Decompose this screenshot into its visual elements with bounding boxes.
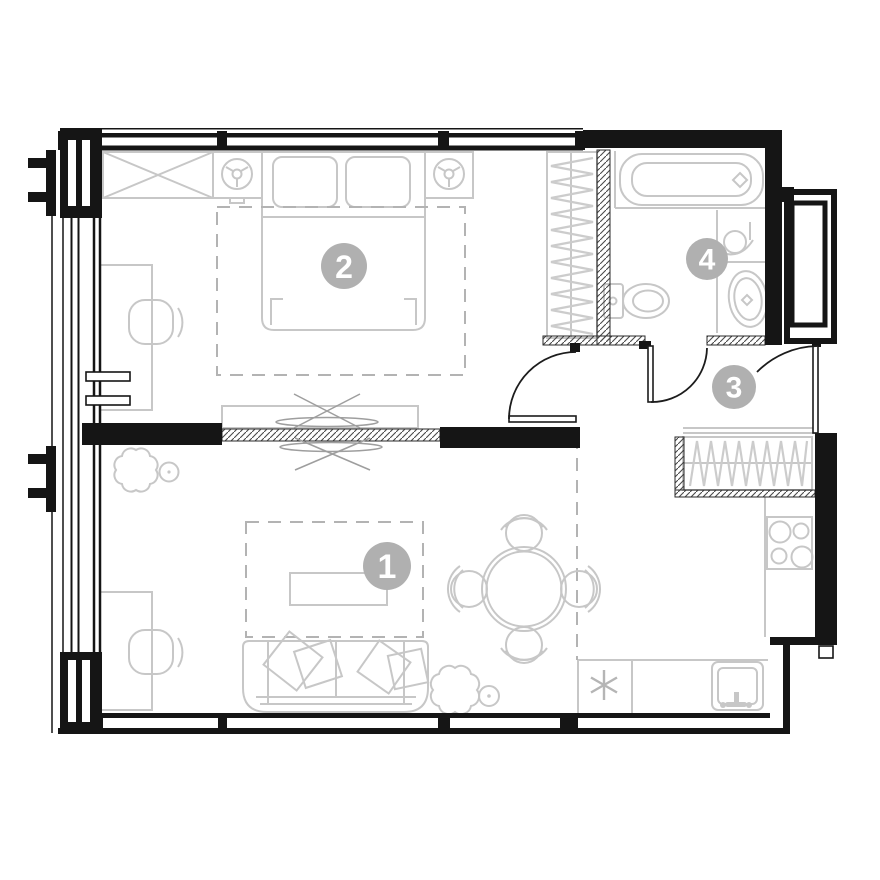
- table-lamp-icon: [222, 159, 252, 189]
- room-badges: 1 2 3 4: [321, 238, 756, 590]
- table-lamp-icon: [434, 159, 464, 189]
- bathroom-wall: [707, 336, 765, 345]
- wall-corner-block: [60, 652, 102, 734]
- top-wall: [583, 130, 782, 148]
- room-badge-living: 1: [363, 542, 411, 590]
- kitchen-sink: [712, 662, 763, 710]
- room-number: 1: [378, 548, 397, 586]
- rug-bedroom: [217, 207, 465, 375]
- right-wall: [815, 433, 837, 638]
- desk-living: [100, 592, 152, 710]
- bathroom-right-wall: [765, 145, 782, 345]
- entrance-door: [757, 346, 818, 433]
- bedroom-door: [509, 352, 576, 422]
- dining-table: [482, 547, 566, 631]
- desk-chair: [129, 300, 182, 344]
- floor-plan-drawing: 1 2 3 4: [0, 0, 880, 880]
- drain-icon: [733, 173, 747, 187]
- facade-bracket: [28, 150, 56, 216]
- floor-plan-canvas: 1 2 3 4: [0, 0, 880, 880]
- doors: [509, 346, 818, 433]
- room-badge-bathroom: 4: [686, 238, 728, 280]
- bathroom-fixtures: [604, 151, 771, 333]
- wall-notch: [819, 646, 833, 658]
- stove: [767, 517, 813, 569]
- desk-chair: [129, 630, 182, 674]
- bottom-window-wall: [58, 713, 790, 734]
- window-joint: [86, 396, 130, 405]
- sofa: [243, 632, 428, 712]
- window-joint: [86, 372, 130, 381]
- hallway-closet: [683, 428, 815, 490]
- right-lower-wall: [783, 645, 790, 734]
- pillow: [346, 157, 410, 207]
- partition-wall: [82, 423, 222, 445]
- top-window-wall: [58, 129, 585, 151]
- bathtub: [615, 151, 765, 208]
- bed: [262, 152, 425, 330]
- plant: [431, 666, 499, 714]
- partition-wall: [440, 427, 580, 448]
- facade-bracket: [28, 446, 56, 512]
- washbasin: [725, 269, 770, 330]
- room-badge-bedroom: 2: [321, 243, 367, 289]
- room-badge-hallway: 3: [712, 365, 756, 409]
- wardrobe: [103, 152, 213, 198]
- bathroom-door: [648, 346, 707, 402]
- plant: [114, 448, 178, 491]
- closet-wall: [675, 490, 815, 497]
- closet-wall: [675, 437, 684, 490]
- bathroom-wall: [543, 336, 645, 345]
- towel-dryer-icon: [722, 222, 753, 254]
- sofa-pillow: [358, 641, 411, 694]
- sliding-door-wall: [222, 429, 440, 441]
- kitchen: [577, 436, 813, 713]
- room-number: 2: [335, 249, 353, 285]
- dining-chair: [501, 515, 547, 551]
- wall-corner-block: [60, 128, 102, 218]
- closet-bedroom: [547, 152, 597, 338]
- pillow: [273, 157, 337, 207]
- bedroom-bathroom-wall: [597, 150, 610, 345]
- swing-mark-icon: [294, 394, 360, 428]
- room-number: 3: [726, 372, 743, 405]
- sofa-pillow: [388, 649, 428, 689]
- room-number: 4: [699, 244, 716, 277]
- door-jamb: [570, 343, 580, 352]
- desk-bedroom: [100, 265, 152, 410]
- shaft-niche: [780, 187, 834, 341]
- wall-step: [770, 637, 837, 645]
- living-room-furniture: [100, 448, 600, 714]
- dining-chair: [501, 627, 547, 663]
- toilet: [604, 284, 669, 318]
- kitchen-asterisk-icon: [591, 670, 617, 700]
